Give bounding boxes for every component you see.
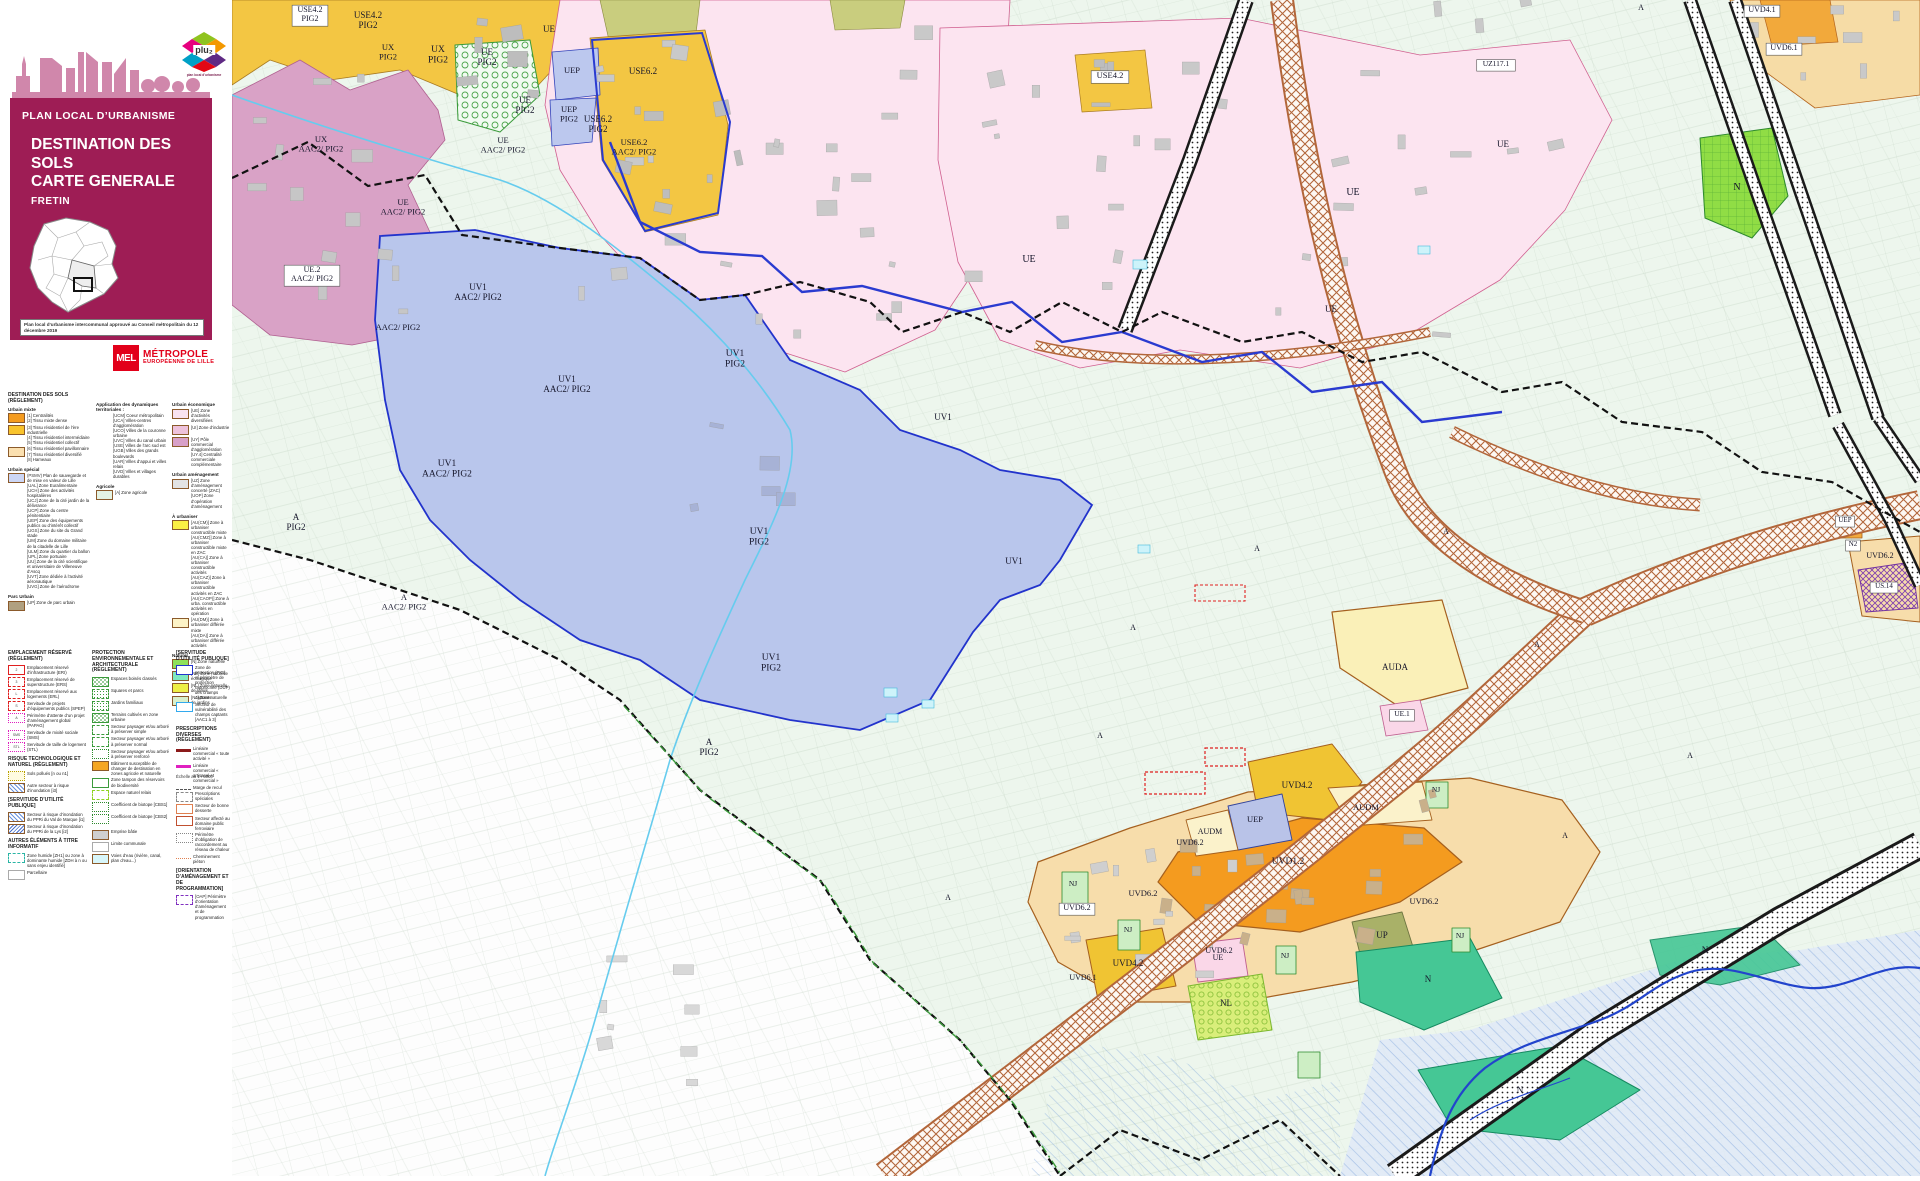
legend-item-text: Secteur paysager et/ou arboré à préserve… bbox=[111, 736, 170, 746]
legend-group-title: À urbaniser bbox=[172, 514, 230, 519]
legend-section: DESTINATION DES SOLS (RÈGLEMENT)Urbain m… bbox=[8, 393, 92, 462]
legend-swatch bbox=[92, 830, 109, 840]
legend-item-text: Zone humide [ZH1] ou zone à dominante hu… bbox=[27, 853, 88, 868]
legend-item-text: [1]Centralités[2]Tissu mixte dense bbox=[27, 413, 67, 423]
legend-swatch bbox=[176, 749, 191, 752]
legend-item: 3Emplacement réservé de superstructure (… bbox=[8, 677, 88, 688]
legend-item: Secteur paysager et/ou arboré à préserve… bbox=[92, 749, 170, 760]
map-zone-label: UVD6.1 bbox=[1766, 43, 1802, 55]
map-zone-label: AUDM bbox=[1198, 827, 1222, 836]
map-zone-label: A bbox=[1254, 544, 1260, 553]
legend-item-text: Terrains cultivés en zone urbaine bbox=[111, 712, 170, 722]
legend-item-text: Secteur de bonne desserte bbox=[195, 803, 230, 813]
svg-text:NJ: NJ bbox=[1432, 785, 1440, 794]
legend-swatch bbox=[172, 479, 189, 489]
map-zone-label: UVD1.2 bbox=[1272, 857, 1305, 867]
legend-item-text: Secteur à risque d’inondation du PPRi de… bbox=[27, 824, 88, 834]
map-zone-label: NJ bbox=[1432, 785, 1440, 794]
legend-item: [1]Centralités[2]Tissu mixte dense bbox=[8, 413, 92, 424]
legend-item: Prescriptions spéciales bbox=[176, 791, 230, 802]
title-line-1: DESTINATION DES SOLS bbox=[31, 136, 212, 173]
map-zone-label: A bbox=[945, 893, 951, 902]
legend-item: Emprise bâtie bbox=[92, 829, 170, 840]
svg-text:UVD6.2: UVD6.2 bbox=[1128, 888, 1157, 898]
legend-item: STLServitude de taille de logement (STL) bbox=[8, 742, 88, 753]
legend-item-text: [A]Zone agricole bbox=[115, 490, 147, 495]
legend-item-text: Jardins familiaux bbox=[111, 700, 143, 705]
svg-text:UV1PIG2: UV1PIG2 bbox=[725, 349, 745, 370]
legend-item: Périmètre d’obligation de raccordement a… bbox=[176, 832, 230, 852]
legend-item-text: Servitude de projets d’équipements publi… bbox=[27, 701, 88, 711]
svg-text:UV1PIG2: UV1PIG2 bbox=[749, 527, 769, 548]
legend-item: LEmplacement réservé aux logements (ERL) bbox=[8, 689, 88, 700]
svg-text:UEP: UEP bbox=[1247, 814, 1263, 824]
legend-item: [3]Tissu résidentiel de l’ère industriel… bbox=[8, 425, 92, 445]
legend-swatch bbox=[96, 490, 113, 500]
map-zone-label: N bbox=[1425, 974, 1432, 984]
svg-text:A: A bbox=[1254, 544, 1260, 553]
svg-text:USE6.2: USE6.2 bbox=[629, 66, 657, 76]
legend-item: Jardins familiaux bbox=[92, 700, 170, 711]
map-legend: DESTINATION DES SOLS (RÈGLEMENT)Urbain m… bbox=[0, 376, 232, 806]
legend-swatch: L bbox=[8, 689, 25, 699]
svg-text:UV1: UV1 bbox=[1005, 556, 1023, 566]
legend-swatch bbox=[176, 789, 191, 790]
legend-item: [6]Tissu résidentiel pavillonnaire[7]Tis… bbox=[8, 446, 92, 461]
legend-band2-col-c: [SERVITUDE D’UTILITÉ PUBLIQUE]Zone de pr… bbox=[176, 648, 230, 925]
map-zone-label: UV1PIG2 bbox=[725, 349, 745, 370]
legend-section: PROTECTION ENVIRONNEMENTALE ET ARCHITECT… bbox=[92, 651, 170, 824]
legend-item: Terrains cultivés en zone urbaine bbox=[92, 712, 170, 723]
legend-item-text: [UZ]Zone d’aménagement concerté (ZAC)[UO… bbox=[191, 478, 230, 508]
legend-item-text: Emprise bâtie bbox=[111, 829, 137, 834]
legend-swatch bbox=[92, 814, 109, 824]
legend-section: Application des dynamiques territoriales… bbox=[96, 402, 168, 479]
legend-item-text: Espaces boisés classés bbox=[111, 676, 157, 681]
legend-item-text: Périmètre d’obligation de raccordement a… bbox=[195, 832, 230, 852]
map-zone-label: N bbox=[1702, 945, 1709, 955]
legend-item: Espace naturel relais bbox=[92, 790, 170, 801]
legend-item: Secteur paysager et/ou arboré à préserve… bbox=[92, 736, 170, 747]
svg-text:AUDA: AUDA bbox=[1382, 662, 1408, 672]
legend-swatch bbox=[92, 790, 109, 800]
map-zone-label: UEP bbox=[1247, 814, 1263, 824]
legend-section: [SERVITUDE D’UTILITÉ PUBLIQUE]Zone de pr… bbox=[176, 651, 230, 722]
svg-text:UZ117.1: UZ117.1 bbox=[1483, 59, 1510, 68]
legend-item: Zone humide [ZH1] ou zone à dominante hu… bbox=[8, 853, 88, 868]
svg-text:US.14: US.14 bbox=[1875, 582, 1893, 590]
legend-item-text: [UI]Zone d’industrie bbox=[191, 425, 229, 430]
svg-text:NJ: NJ bbox=[1069, 879, 1077, 888]
legend-item-text: [AU(DM)]Zone à urbaniser différée mixte[… bbox=[191, 617, 230, 647]
map-zone-label: UVD6.1 bbox=[1069, 973, 1096, 982]
svg-text:UVD6.1: UVD6.1 bbox=[1069, 973, 1096, 982]
plu-map-sheet: { "colors":{"magenta":"#9e1d55","melred"… bbox=[0, 0, 1920, 1176]
legend-swatch bbox=[8, 812, 25, 822]
legend-swatch: STL bbox=[8, 742, 25, 752]
legend-swatch bbox=[8, 473, 25, 483]
legend-item: Squares et parcs bbox=[92, 688, 170, 699]
legend-item-text: [AU(CM)]Zone à urbaniser constructible m… bbox=[191, 520, 230, 616]
svg-text:NJ: NJ bbox=[1456, 931, 1464, 940]
legend-item-text: [6]Tissu résidentiel pavillonnaire[7]Tis… bbox=[27, 446, 89, 461]
legend-band2-col-a: EMPLACEMENT RÉSERVÉ (RÈGLEMENT)2Emplacem… bbox=[8, 648, 88, 885]
legend-item-text: [3]Tissu résidentiel de l’ère industriel… bbox=[27, 425, 92, 445]
legend-section: Emprise bâtieLimite communaleVoies d’eau… bbox=[92, 829, 170, 864]
legend-section: Urbain spécial(PSMV)Plan de sauvegarde e… bbox=[8, 467, 92, 589]
svg-text:UE.1: UE.1 bbox=[1394, 709, 1410, 718]
svg-text:UVD4.2: UVD4.2 bbox=[1113, 958, 1144, 968]
legend-item: [UP]Zone de parc urbain bbox=[8, 600, 92, 611]
legend-item-text: Linéaire commercial « artisanal et comme… bbox=[193, 763, 230, 783]
map-zone-label: UV1 bbox=[1005, 556, 1023, 566]
legend-item: [OAP]Périmètre d’orientation d’aménageme… bbox=[176, 894, 230, 919]
legend-section: [ORIENTATION D’AMÉNAGEMENT ET DE PROGRAM… bbox=[176, 869, 230, 919]
legend-swatch bbox=[176, 816, 193, 826]
legend-item-text: Coefficient de biotope [CBS1] bbox=[111, 802, 167, 807]
svg-text:UEP: UEP bbox=[1838, 516, 1851, 524]
legend-item: Espaces boisés classés bbox=[92, 676, 170, 687]
legend-section: EMPLACEMENT RÉSERVÉ (RÈGLEMENT)2Emplacem… bbox=[8, 651, 88, 752]
svg-text:UVD6.2: UVD6.2 bbox=[1063, 903, 1090, 912]
svg-text:UP: UP bbox=[1376, 930, 1388, 940]
scale-note: Échelle au 1 / 5000 bbox=[176, 774, 213, 779]
legend-section: [SERVITUDE D’UTILITÉ PUBLIQUE]Secteur à … bbox=[8, 798, 88, 834]
legend-item-text: Bâtiment susceptible de changer de desti… bbox=[111, 761, 170, 776]
map-zone-label: A bbox=[1562, 831, 1568, 840]
map-zone-label: UE bbox=[543, 24, 555, 34]
legend-section-title: [SERVITUDE D’UTILITÉ PUBLIQUE] bbox=[176, 651, 230, 663]
legend-swatch bbox=[92, 713, 109, 723]
legend-item-text: [UCM]Coeur métropolitain[UCA]Villes-cent… bbox=[113, 413, 168, 479]
map-zone-label: UE bbox=[1325, 304, 1337, 314]
legend-item: [UI]Zone d’industrie bbox=[172, 425, 230, 436]
map-zone-label: UVD6.2 bbox=[1128, 888, 1157, 898]
legend-swatch: 3 bbox=[8, 677, 25, 687]
legend-swatch bbox=[92, 778, 109, 788]
svg-text:A: A bbox=[1687, 751, 1693, 760]
legend-section: Urbain aménagement[UZ]Zone d’aménagement… bbox=[172, 472, 230, 508]
legend-section: Parc Urbain[UP]Zone de parc urbain bbox=[8, 594, 92, 611]
legend-item: [UCM]Coeur métropolitain[UCA]Villes-cent… bbox=[96, 413, 168, 479]
svg-text:N: N bbox=[1733, 182, 1740, 193]
legend-item: SServitude de projets d’équipements publ… bbox=[8, 701, 88, 712]
legend-item-text: Sols pollués [n ou n1] bbox=[27, 771, 68, 776]
map-zone-label: UEP bbox=[1835, 516, 1854, 527]
legend-group-title: Parc Urbain bbox=[8, 594, 92, 599]
legend-item-text: [OAP]Périmètre d’orientation d’aménageme… bbox=[195, 894, 230, 919]
legend-swatch bbox=[92, 677, 109, 687]
legend-item-text: Voies d’eau (rivière, canal, plan d’eau.… bbox=[111, 853, 170, 863]
legend-item-text: [UP]Zone de parc urbain bbox=[27, 600, 75, 605]
legend-item: Coefficient de biotope [CBS2] bbox=[92, 814, 170, 825]
legend-swatch bbox=[8, 447, 25, 457]
legend-item: [A]Zone agricole bbox=[96, 490, 168, 501]
svg-text:NJ: NJ bbox=[1281, 951, 1289, 960]
legend-group-title: Urbain aménagement bbox=[172, 472, 230, 477]
svg-text:NJ: NJ bbox=[1124, 925, 1132, 934]
legend-item-text: Servitude de mixité sociale (SMS) bbox=[27, 730, 88, 740]
svg-text:UVD6.1: UVD6.1 bbox=[1770, 43, 1797, 52]
legend-item-text: Emplacement réservé aux logements (ERL) bbox=[27, 689, 88, 699]
svg-text:A: A bbox=[1130, 623, 1136, 632]
legend-section: Urbain économique[UE]Zone d’activités di… bbox=[172, 402, 230, 467]
legend-item: Secteur à risque d’inondation du PPRi du… bbox=[8, 812, 88, 823]
legend-item-text: Zone tampon des réservoirs de biodiversi… bbox=[111, 777, 170, 787]
legend-item: Secteur de vulnérabilité des champs capt… bbox=[176, 702, 230, 722]
legend-swatch bbox=[176, 804, 193, 814]
svg-text:A: A bbox=[1443, 527, 1449, 536]
map-zone-label: AUDA bbox=[1382, 662, 1408, 672]
legend-swatch bbox=[176, 792, 193, 802]
legend-swatch bbox=[8, 870, 25, 880]
commune-name: FRETIN bbox=[31, 196, 70, 207]
zone-olive-2 bbox=[830, 0, 905, 30]
legend-section-title: [ORIENTATION D’AMÉNAGEMENT ET DE PROGRAM… bbox=[176, 869, 230, 892]
legend-swatch: SMS bbox=[8, 730, 25, 740]
map-zone-label: UV1PIG2 bbox=[749, 527, 769, 548]
svg-text:UE: UE bbox=[1022, 254, 1035, 265]
legend-swatch bbox=[8, 601, 25, 611]
sidebar: plu₂ plan local d’urbanisme PLAN LOCAL D… bbox=[0, 0, 232, 1176]
legend-item-text: Périmètre d’attente d’un projet d’aménag… bbox=[27, 713, 88, 728]
legend-band2-col-b: PROTECTION ENVIRONNEMENTALE ET ARCHITECT… bbox=[92, 648, 170, 869]
legend-swatch bbox=[176, 702, 193, 712]
legend-item: [UY]Pôle commercial d’agglomération[UY.4… bbox=[172, 437, 230, 467]
title-card: plu₂ plan local d’urbanisme PLAN LOCAL D… bbox=[10, 14, 212, 340]
svg-text:UVD6.2: UVD6.2 bbox=[1176, 838, 1203, 847]
legend-section-title: AUTRES ÉLÉMENTS À TITRE INFORMATIF bbox=[8, 839, 88, 851]
map-zone-label: UVD4.2 bbox=[1282, 780, 1313, 790]
map-zone-label: UVD6.2 bbox=[1409, 896, 1438, 906]
legend-section: AUTRES ÉLÉMENTS À TITRE INFORMATIFZone h… bbox=[8, 839, 88, 880]
map-zone-label: US.14 bbox=[1870, 582, 1898, 593]
legend-swatch bbox=[176, 833, 193, 843]
legend-swatch bbox=[172, 520, 189, 530]
map-zone-label: A bbox=[1097, 731, 1103, 740]
map-zone-label: UP bbox=[1376, 930, 1388, 940]
map-zone-label: UE bbox=[1346, 187, 1359, 198]
legend-swatch bbox=[176, 858, 191, 859]
plu-logo-subtitle: plan local d’urbanisme bbox=[182, 74, 226, 78]
map-zone-label: AUDM bbox=[1353, 802, 1379, 812]
legend-item: (PSMV)Plan de sauvegarde et de mise en v… bbox=[8, 473, 92, 589]
legend-item-text: Autre secteur à risque d’inondation [i3] bbox=[27, 783, 88, 793]
map-zone-label: UVD4.2 bbox=[1113, 958, 1144, 968]
svg-text:UEPPIG2: UEPPIG2 bbox=[560, 104, 578, 124]
legend-item: Limite communale bbox=[92, 841, 170, 852]
legend-item-text: [UE]Zone d’activités diversifiées bbox=[191, 408, 230, 423]
svg-text:UE: UE bbox=[1346, 187, 1359, 198]
map-zone-label: N bbox=[1733, 182, 1740, 193]
title-line-2: CARTE GENERALE bbox=[31, 173, 212, 192]
map-zone-label: UE.1 bbox=[1390, 709, 1415, 721]
legend-swatch bbox=[172, 425, 189, 435]
legend-swatch bbox=[8, 413, 25, 423]
legend-item-text: Linéaire commercial « toute activité » bbox=[193, 746, 230, 761]
legend-section-title: [SERVITUDE D’UTILITÉ PUBLIQUE] bbox=[8, 798, 88, 810]
legend-swatch bbox=[176, 765, 191, 768]
map-zone-label: UV1PIG2 bbox=[761, 653, 781, 674]
legend-group-title: Application des dynamiques territoriales… bbox=[96, 402, 168, 412]
document-title: DESTINATION DES SOLS CARTE GENERALE bbox=[31, 136, 212, 192]
legend-item-text: Cheminement piéton bbox=[193, 854, 230, 864]
legend-item-text: Zone de protection (PIG) et périmètre de… bbox=[195, 665, 230, 700]
map-zone-label: UE bbox=[1497, 139, 1509, 149]
legend-swatch bbox=[92, 854, 109, 864]
mel-logo: MEL MÉTROPOLE EUROPÉENNE DE LILLE bbox=[113, 345, 214, 371]
legend-item-text: Secteur de vulnérabilité des champs capt… bbox=[195, 702, 230, 722]
legend-item: Secteur paysager et/ou arboré à préserve… bbox=[92, 724, 170, 735]
legend-swatch bbox=[92, 802, 109, 812]
legend-group-title: Urbain économique bbox=[172, 402, 230, 407]
legend-section: Agricole[A]Zone agricole bbox=[96, 484, 168, 501]
legend-swatch bbox=[8, 783, 25, 793]
svg-text:A: A bbox=[1638, 3, 1644, 12]
map-zone-label: UVD6.2 bbox=[1866, 551, 1893, 560]
map-zone-label: N bbox=[1517, 1085, 1524, 1095]
map-zone-label: A bbox=[1534, 640, 1540, 649]
locator-map bbox=[24, 216, 126, 316]
legend-item: Secteur à risque d’inondation du PPRi de… bbox=[8, 824, 88, 835]
svg-text:N: N bbox=[1517, 1085, 1524, 1095]
map-zone-label: USE4.2PIG2 bbox=[292, 5, 328, 26]
map-zone-label: AAC2/ PIG2 bbox=[376, 322, 421, 332]
legend-group-title: Agricole bbox=[96, 484, 168, 489]
legend-swatch bbox=[92, 689, 109, 699]
legend-swatch bbox=[172, 409, 189, 419]
legend-section-title: EMPLACEMENT RÉSERVÉ (RÈGLEMENT) bbox=[8, 651, 88, 663]
legend-section: PRESCRIPTIONS DIVERSES (RÈGLEMENT)Linéai… bbox=[176, 727, 230, 864]
legend-group-title: Urbain spécial bbox=[8, 467, 92, 472]
legend-item: Zone de protection (PIG) et périmètre de… bbox=[176, 665, 230, 700]
legend-item: [AU(DM)]Zone à urbaniser différée mixte[… bbox=[172, 617, 230, 647]
map-zone-label: UVD6.2 bbox=[1059, 903, 1095, 915]
mel-logo-square: MEL bbox=[113, 345, 139, 371]
map-zone-label: UVD6.2 bbox=[1176, 838, 1203, 847]
svg-text:UVD1.2: UVD1.2 bbox=[1272, 857, 1305, 867]
legend-item-text: Secteur à risque d’inondation du PPRi du… bbox=[27, 812, 88, 822]
svg-text:N2: N2 bbox=[1849, 540, 1858, 548]
legend-item-text: Squares et parcs bbox=[111, 688, 143, 693]
map-zone-label: USE6.2 bbox=[629, 66, 657, 76]
svg-text:UEP: UEP bbox=[564, 65, 580, 75]
map-zone-label: NJ bbox=[1069, 879, 1077, 888]
svg-text:USE4.2: USE4.2 bbox=[1097, 70, 1124, 80]
legend-swatch bbox=[172, 618, 189, 628]
legend-swatch bbox=[92, 749, 109, 759]
svg-text:AAC2/ PIG2: AAC2/ PIG2 bbox=[376, 322, 421, 332]
legend-item: Linéaire commercial « toute activité » bbox=[176, 746, 230, 761]
legend-item: Linéaire commercial « artisanal et comme… bbox=[176, 763, 230, 783]
map-zone-label: UE.2AAC2/ PIG2 bbox=[284, 265, 340, 286]
zoning-map-canvas[interactable]: USE4.2PIG2USE4.2PIG2UXPIG2UXPIG2UEPIG2UE… bbox=[232, 0, 1920, 1176]
legend-section: À urbaniser[AU(CM)]Zone à urbaniser cons… bbox=[172, 514, 230, 648]
map-zone-label: UEP bbox=[564, 65, 580, 75]
svg-text:UVD6.2: UVD6.2 bbox=[1866, 551, 1893, 560]
legend-item: Autre secteur à risque d’inondation [i3] bbox=[8, 783, 88, 794]
map-zone-label: UE bbox=[1022, 254, 1035, 265]
svg-text:AUDM: AUDM bbox=[1198, 827, 1222, 836]
legend-item-text: Emplacement réservé de superstructure (E… bbox=[27, 677, 88, 687]
legend-swatch bbox=[8, 853, 25, 863]
svg-text:UV1: UV1 bbox=[934, 412, 952, 422]
svg-text:A: A bbox=[1562, 831, 1568, 840]
legend-swatch bbox=[172, 437, 189, 447]
legend-section-title: PRESCRIPTIONS DIVERSES (RÈGLEMENT) bbox=[176, 727, 230, 744]
legend-item-text: Marge de recul bbox=[193, 785, 222, 790]
map-zone-label: A bbox=[1130, 623, 1136, 632]
svg-text:N: N bbox=[1702, 945, 1709, 955]
legend-swatch: 2 bbox=[8, 665, 25, 675]
legend-swatch bbox=[92, 842, 109, 852]
legend-section-title: DESTINATION DES SOLS (RÈGLEMENT) bbox=[8, 393, 92, 405]
legend-item: [UZ]Zone d’aménagement concerté (ZAC)[UO… bbox=[172, 478, 230, 508]
legend-swatch bbox=[176, 895, 193, 905]
legend-item-text: (PSMV)Plan de sauvegarde et de mise en v… bbox=[27, 473, 92, 589]
plu2-logo: plu₂ plan local d’urbanisme bbox=[182, 32, 226, 90]
svg-text:UE: UE bbox=[543, 24, 555, 34]
svg-text:NL: NL bbox=[1220, 998, 1232, 1008]
map-zone-label: UEPPIG2 bbox=[560, 104, 578, 124]
map-zone-label: NJ bbox=[1281, 951, 1289, 960]
legend-item-text: Secteur paysager et/ou arboré à préserve… bbox=[111, 749, 170, 759]
mel-line-2: EUROPÉENNE DE LILLE bbox=[143, 360, 214, 366]
legend-item: Zone tampon des réservoirs de biodiversi… bbox=[92, 777, 170, 788]
legend-swatch bbox=[92, 701, 109, 711]
legend-band1-col-b: Application des dynamiques territoriales… bbox=[96, 400, 168, 505]
legend-item-text: Secteur paysager et/ou arboré à préserve… bbox=[111, 724, 170, 734]
legend-section-title: RISQUE TECHNOLOGIQUE ET NATUREL (RÈGLEME… bbox=[8, 757, 88, 769]
legend-item-text: Emplacement réservé d’infrastructure (ER… bbox=[27, 665, 88, 675]
legend-item: Secteur affecté au domaine public ferrov… bbox=[176, 816, 230, 831]
legend-swatch bbox=[92, 761, 109, 771]
map-zone-label: UV1 bbox=[934, 412, 952, 422]
map-zone-label: USE4.2 bbox=[1091, 70, 1129, 83]
svg-text:AUDM: AUDM bbox=[1353, 802, 1379, 812]
svg-text:A: A bbox=[1097, 731, 1103, 740]
legend-item: APérimètre d’attente d’un projet d’aména… bbox=[8, 713, 88, 728]
map-zone-label: NJ bbox=[1124, 925, 1132, 934]
legend-item: Parcellaire bbox=[8, 870, 88, 881]
svg-text:UVD6.2: UVD6.2 bbox=[1409, 896, 1438, 906]
city-skyline-illustration bbox=[12, 44, 210, 99]
legend-group-title: Urbain mixte bbox=[8, 407, 92, 412]
svg-text:UE: UE bbox=[1213, 953, 1224, 962]
map-zone-label: A bbox=[1443, 527, 1449, 536]
approval-note: Plan local d’urbanisme intercommunal app… bbox=[20, 319, 204, 336]
map-zone-label: UVD4.1 bbox=[1744, 5, 1780, 17]
legend-swatch bbox=[8, 824, 25, 834]
legend-item: [AU(CM)]Zone à urbaniser constructible m… bbox=[172, 520, 230, 616]
svg-text:UE: UE bbox=[1497, 139, 1509, 149]
map-zone-label: A bbox=[1687, 751, 1693, 760]
legend-swatch bbox=[8, 425, 25, 435]
legend-swatch: S bbox=[8, 701, 25, 711]
legend-swatch bbox=[92, 725, 109, 735]
svg-text:A: A bbox=[945, 893, 951, 902]
document-kicker: PLAN LOCAL D’URBANISME bbox=[22, 110, 175, 122]
legend-item-text: Parcellaire bbox=[27, 870, 47, 875]
legend-band1-col-a: DESTINATION DES SOLS (RÈGLEMENT)Urbain m… bbox=[8, 390, 92, 616]
map-zone-label: UZ117.1 bbox=[1477, 59, 1516, 71]
legend-swatch bbox=[176, 665, 193, 675]
mel-logo-text: MÉTROPOLE EUROPÉENNE DE LILLE bbox=[143, 350, 214, 366]
svg-text:UVD4.2: UVD4.2 bbox=[1282, 780, 1313, 790]
map-zone-label: NL bbox=[1220, 998, 1232, 1008]
legend-item: SMSServitude de mixité sociale (SMS) bbox=[8, 730, 88, 741]
map-zone-label: A bbox=[1638, 3, 1644, 12]
